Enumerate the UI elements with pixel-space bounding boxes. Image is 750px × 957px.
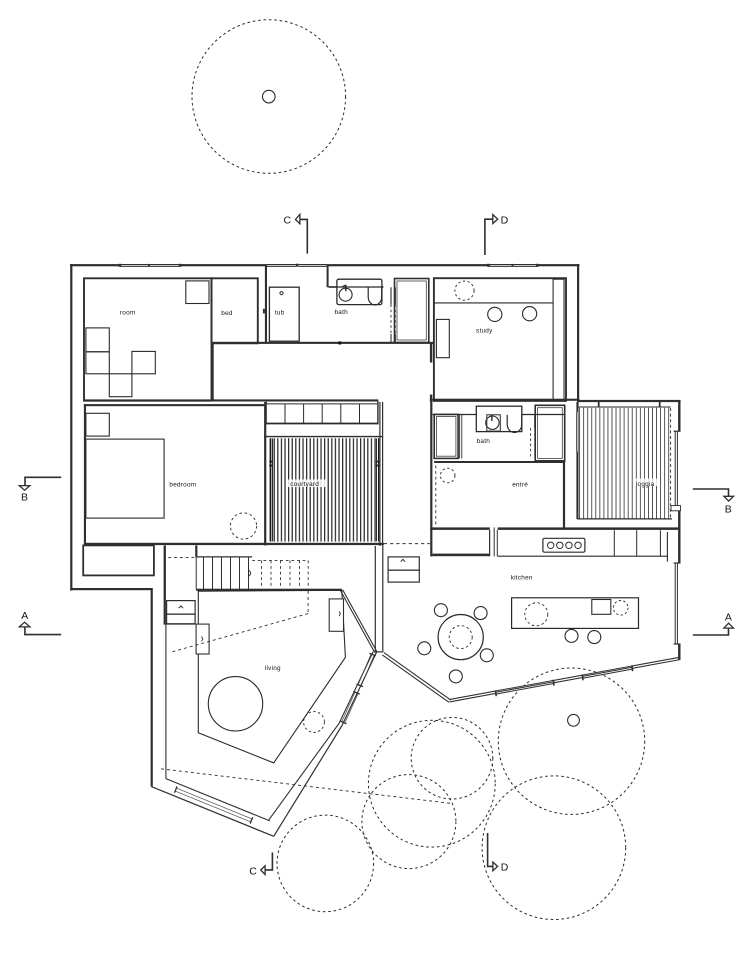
svg-text:courtyard: courtyard [290, 481, 319, 488]
svg-text:B: B [21, 492, 28, 504]
svg-text:loggia: loggia [636, 481, 655, 488]
svg-text:B: B [725, 503, 732, 515]
svg-text:A: A [21, 610, 28, 622]
svg-text:entré: entré [512, 481, 528, 488]
svg-text:study: study [476, 327, 493, 334]
svg-text:C: C [284, 215, 292, 227]
svg-text:bath: bath [335, 309, 349, 316]
svg-text:bedroom: bedroom [169, 481, 196, 488]
svg-text:A: A [725, 612, 732, 624]
svg-text:living: living [265, 665, 281, 672]
svg-text:D: D [501, 214, 509, 226]
svg-text:bed: bed [221, 310, 233, 317]
svg-text:D: D [501, 862, 509, 874]
svg-text:kitchen: kitchen [511, 574, 533, 581]
svg-text:C: C [249, 866, 257, 878]
svg-text:bath: bath [477, 438, 491, 445]
svg-text:room: room [120, 310, 136, 317]
svg-text:tub: tub [275, 310, 285, 317]
